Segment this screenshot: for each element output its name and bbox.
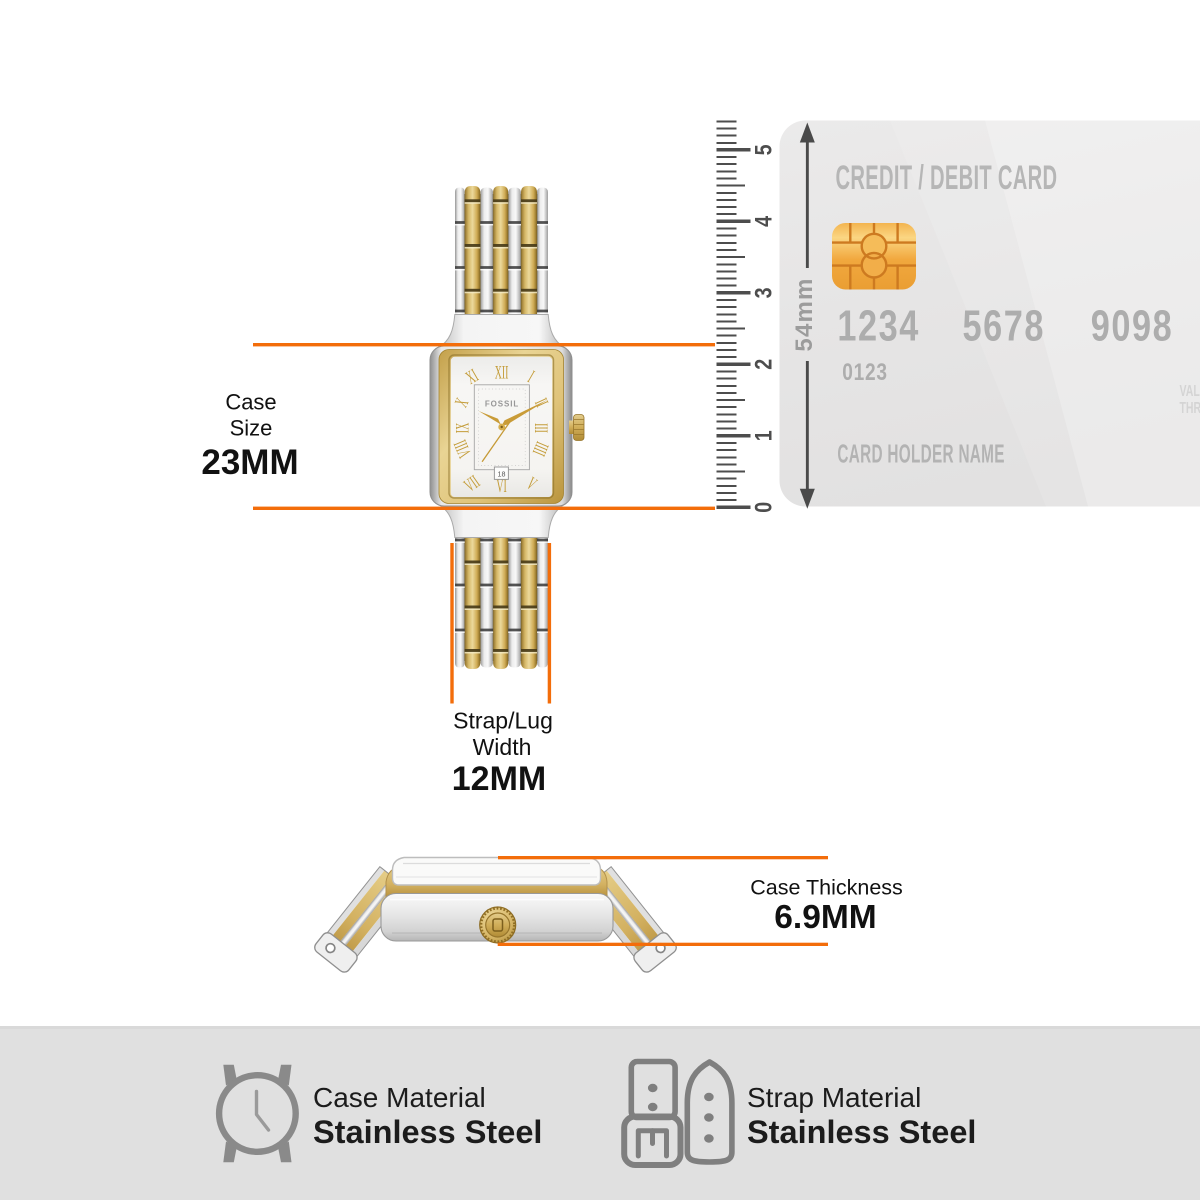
- svg-text:Strap Material: Strap Material: [747, 1082, 921, 1113]
- svg-text:VALID: VALID: [1180, 382, 1200, 400]
- svg-text:1: 1: [750, 430, 777, 441]
- svg-text:Width: Width: [473, 734, 532, 760]
- svg-text:18: 18: [498, 470, 506, 479]
- svg-text:CREDIT / DEBIT CARD: CREDIT / DEBIT CARD: [836, 157, 1058, 196]
- svg-text:THRU: THRU: [1180, 399, 1200, 417]
- svg-text:1234: 1234: [837, 302, 920, 351]
- svg-text:Case Material: Case Material: [313, 1082, 486, 1113]
- svg-text:Strap/Lug: Strap/Lug: [453, 708, 553, 734]
- svg-text:Case Thickness: Case Thickness: [750, 876, 903, 900]
- svg-text:3: 3: [750, 287, 777, 298]
- svg-text:9098: 9098: [1091, 302, 1174, 351]
- svg-text:XII: XII: [495, 363, 509, 383]
- svg-text:III: III: [530, 423, 550, 433]
- svg-text:2: 2: [750, 359, 777, 370]
- svg-text:CARD HOLDER NAME: CARD HOLDER NAME: [837, 439, 1004, 468]
- svg-text:12MM: 12MM: [452, 760, 546, 798]
- svg-text:Stainless Steel: Stainless Steel: [747, 1114, 976, 1150]
- svg-text:Size: Size: [230, 416, 273, 441]
- svg-text:IX: IX: [453, 423, 473, 433]
- svg-text:5678: 5678: [963, 302, 1046, 351]
- svg-text:23MM: 23MM: [201, 443, 298, 482]
- svg-text:4: 4: [750, 215, 777, 227]
- svg-text:54mm: 54mm: [791, 277, 818, 351]
- svg-text:FOSSIL: FOSSIL: [485, 400, 519, 409]
- svg-text:0: 0: [750, 502, 777, 513]
- svg-text:VI: VI: [496, 477, 506, 497]
- svg-text:Case: Case: [225, 390, 276, 415]
- svg-text:0123: 0123: [842, 358, 888, 386]
- svg-text:6.9MM: 6.9MM: [774, 899, 876, 936]
- svg-text:Stainless Steel: Stainless Steel: [313, 1114, 542, 1150]
- svg-text:5: 5: [750, 144, 777, 155]
